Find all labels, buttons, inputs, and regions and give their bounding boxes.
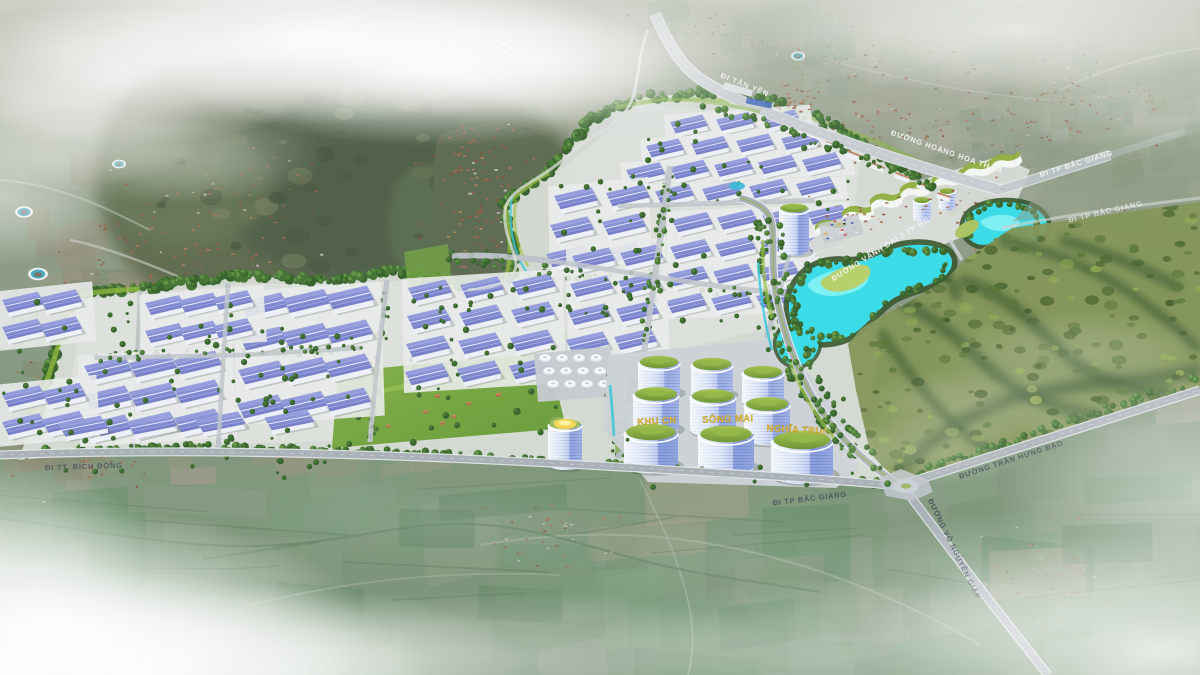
svg-text:SÔNG MAI: SÔNG MAI	[702, 412, 754, 426]
svg-text:KHU CN: KHU CN	[637, 415, 677, 428]
